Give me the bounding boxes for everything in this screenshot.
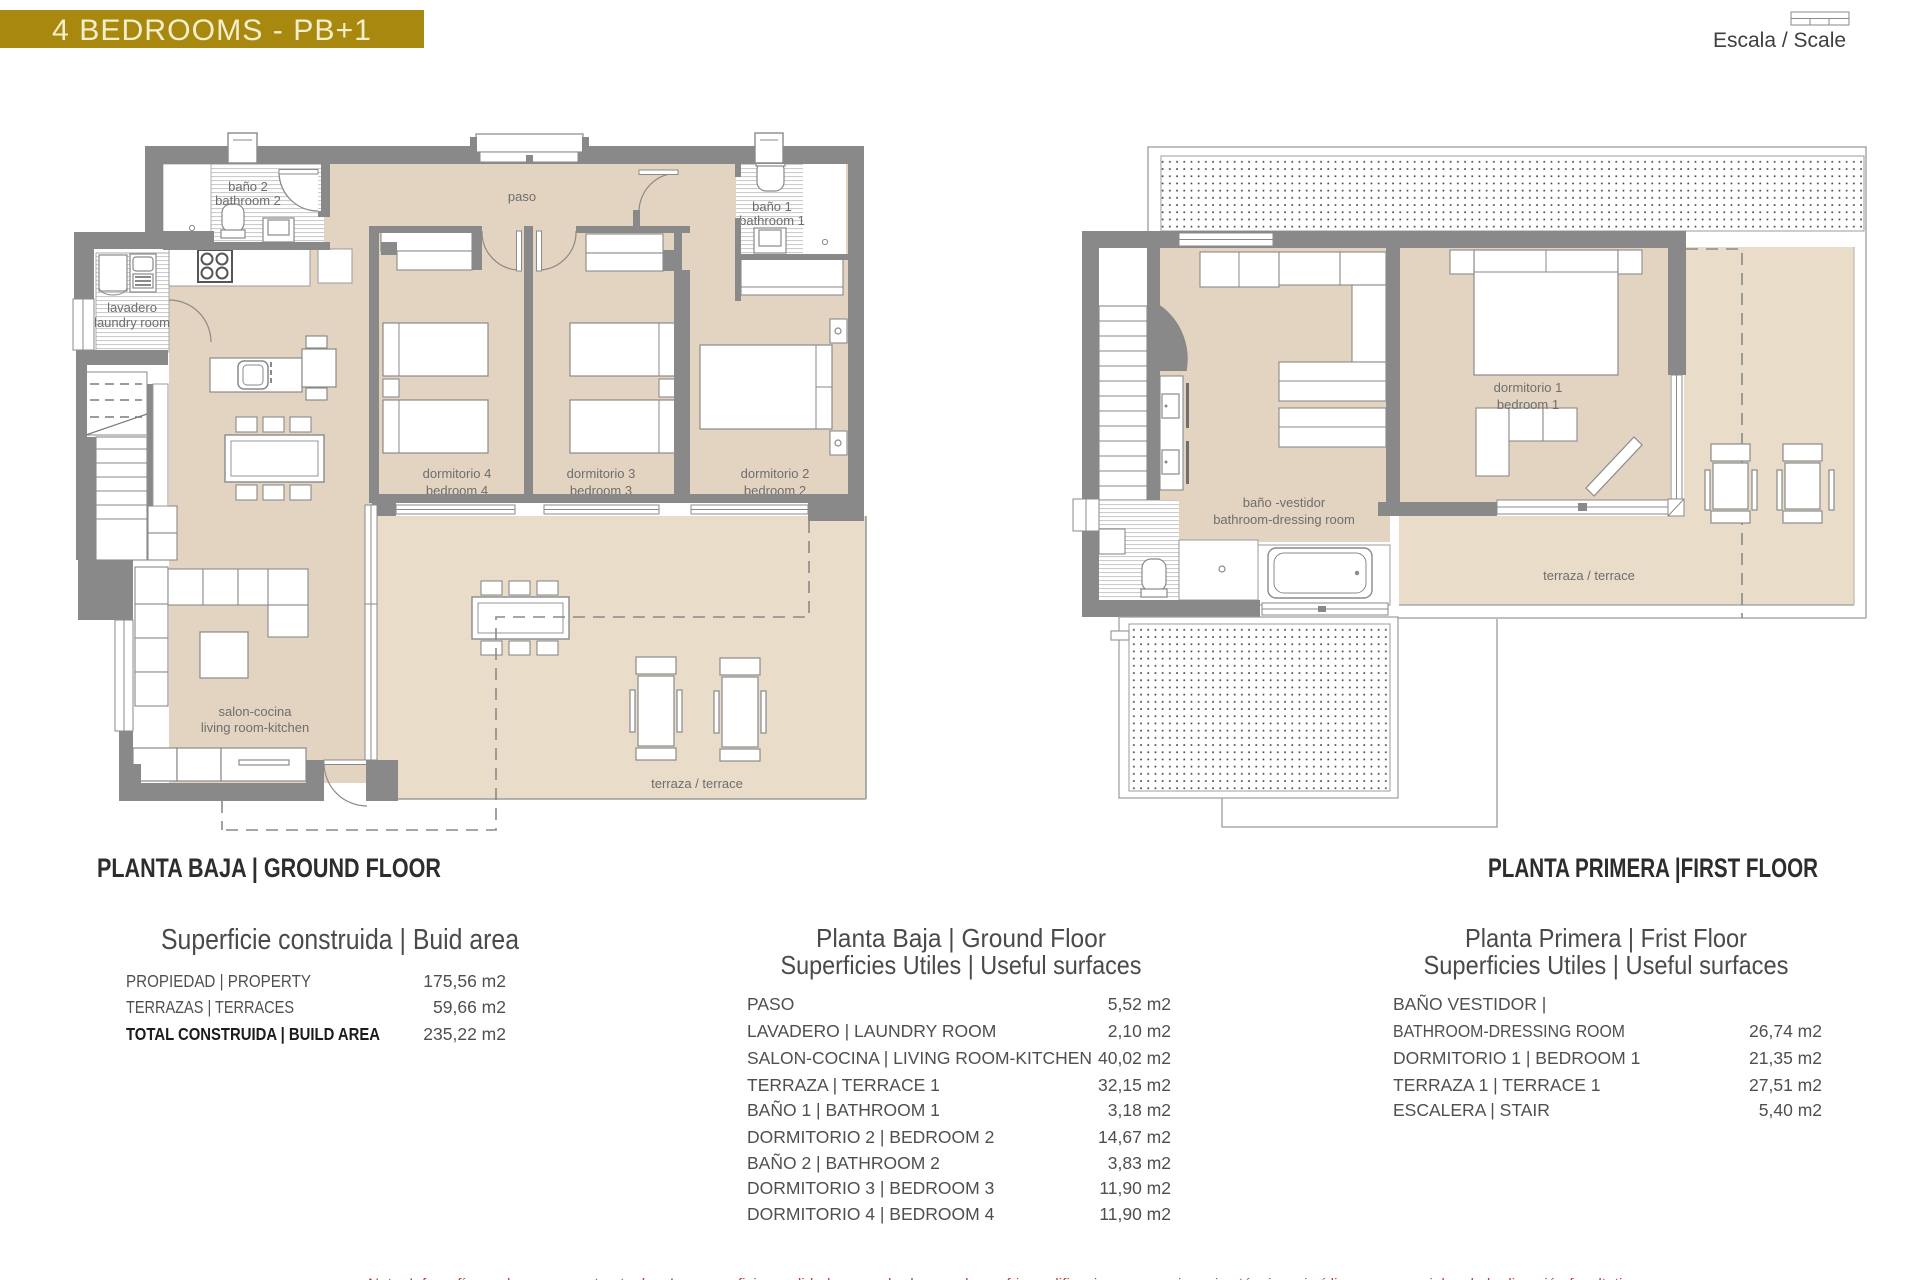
svg-text:Escala / Scale: Escala / Scale	[1713, 29, 1846, 52]
svg-text:bathroom-dressing room: bathroom-dressing room	[1213, 512, 1355, 527]
svg-text:baño 2: baño 2	[228, 179, 268, 194]
svg-text:dormitorio 1: dormitorio 1	[1494, 380, 1563, 395]
svg-text:4 BEDROOMS - PB+1: 4 BEDROOMS - PB+1	[52, 14, 372, 47]
svg-text:11,90 m2: 11,90 m2	[1099, 1204, 1171, 1224]
svg-text:TOTAL CONSTRUIDA | BUILD AREA: TOTAL CONSTRUIDA | BUILD AREA	[126, 1024, 380, 1044]
svg-text:salon-cocina: salon-cocina	[219, 704, 293, 719]
svg-text:living room-kitchen: living room-kitchen	[201, 720, 309, 735]
svg-text:TERRAZA | TERRACE 1: TERRAZA | TERRACE 1	[747, 1075, 940, 1095]
svg-text:TERRAZA 1 | TERRACE 1: TERRAZA 1 | TERRACE 1	[1393, 1075, 1600, 1095]
svg-text:26,74 m2: 26,74 m2	[1749, 1021, 1822, 1041]
svg-text:DORMITORIO 2 | BEDROOM 2: DORMITORIO 2 | BEDROOM 2	[747, 1127, 994, 1147]
svg-text:dormitorio 4: dormitorio 4	[423, 466, 492, 481]
svg-text:TERRAZAS | TERRACES: TERRAZAS | TERRACES	[126, 997, 294, 1017]
svg-text:SALON-COCINA | LIVING ROOM-KIT: SALON-COCINA | LIVING ROOM-KITCHEN	[747, 1048, 1092, 1068]
svg-text:DORMITORIO 3 | BEDROOM 3: DORMITORIO 3 | BEDROOM 3	[747, 1178, 994, 1198]
svg-text:21,35 m2: 21,35 m2	[1749, 1048, 1822, 1068]
svg-text:Nota: Infografías y planos no: Nota: Infografías y planos no contractua…	[368, 1275, 1643, 1280]
svg-text:PLANTA BAJA | GROUND FLOOR: PLANTA BAJA | GROUND FLOOR	[97, 853, 441, 883]
svg-text:terraza / terrace: terraza / terrace	[651, 776, 743, 791]
svg-text:40,02 m2: 40,02 m2	[1098, 1048, 1171, 1068]
svg-text:Superficies Utiles | Useful su: Superficies Utiles | Useful surfaces	[781, 950, 1142, 980]
svg-text:DORMITORIO 4 | BEDROOM 4: DORMITORIO 4 | BEDROOM 4	[747, 1204, 995, 1224]
svg-text:59,66 m2: 59,66 m2	[433, 997, 506, 1017]
svg-text:terraza / terrace: terraza / terrace	[1543, 568, 1635, 583]
svg-text:32,15 m2: 32,15 m2	[1098, 1075, 1171, 1095]
svg-text:LAVADERO | LAUNDRY ROOM: LAVADERO | LAUNDRY ROOM	[747, 1021, 996, 1041]
svg-text:235,22 m2: 235,22 m2	[423, 1024, 506, 1044]
svg-text:dormitorio 2: dormitorio 2	[741, 466, 810, 481]
svg-text:BAÑO VESTIDOR |: BAÑO VESTIDOR |	[1393, 993, 1546, 1014]
svg-text:BAÑO 2 | BATHROOM 2: BAÑO 2 | BATHROOM 2	[747, 1152, 940, 1173]
svg-text:bathroom 2: bathroom 2	[215, 193, 281, 208]
svg-text:laundry room: laundry room	[94, 315, 170, 330]
svg-text:11,90 m2: 11,90 m2	[1099, 1178, 1171, 1198]
svg-text:DORMITORIO 1 | BEDROOM 1: DORMITORIO 1 | BEDROOM 1	[1393, 1048, 1640, 1068]
svg-text:baño 1: baño 1	[752, 199, 792, 214]
svg-text:baño -vestidor: baño -vestidor	[1243, 495, 1326, 510]
svg-text:3,18 m2: 3,18 m2	[1108, 1100, 1171, 1120]
svg-text:Superficies Utiles | Useful su: Superficies Utiles | Useful surfaces	[1424, 950, 1789, 980]
svg-text:3,83 m2: 3,83 m2	[1108, 1153, 1171, 1173]
svg-text:lavadero: lavadero	[107, 300, 157, 315]
svg-text:5,40 m2: 5,40 m2	[1759, 1100, 1822, 1120]
svg-text:BAÑO 1 | BATHROOM 1: BAÑO 1 | BATHROOM 1	[747, 1099, 940, 1120]
svg-text:2,10 m2: 2,10 m2	[1108, 1021, 1171, 1041]
svg-text:BATHROOM-DRESSING ROOM: BATHROOM-DRESSING ROOM	[1393, 1021, 1625, 1041]
svg-text:bathroom 1: bathroom 1	[739, 213, 805, 228]
svg-text:5,52 m2: 5,52 m2	[1108, 994, 1171, 1014]
svg-text:175,56 m2: 175,56 m2	[423, 971, 506, 991]
svg-text:paso: paso	[508, 189, 536, 204]
svg-text:27,51 m2: 27,51 m2	[1749, 1075, 1822, 1095]
svg-text:PLANTA PRIMERA |FIRST FLOOR: PLANTA PRIMERA |FIRST FLOOR	[1488, 853, 1818, 883]
svg-text:PROPIEDAD | PROPERTY: PROPIEDAD | PROPERTY	[126, 971, 311, 991]
svg-text:Superficie construida | Buid a: Superficie construida | Buid area	[161, 924, 520, 956]
svg-text:bedroom 1: bedroom 1	[1497, 397, 1559, 412]
svg-text:PASO: PASO	[747, 994, 794, 1014]
svg-text:14,67 m2: 14,67 m2	[1098, 1127, 1171, 1147]
svg-text:Planta Primera | Frist Floor: Planta Primera | Frist Floor	[1465, 923, 1747, 953]
svg-text:Planta Baja | Ground Floor: Planta Baja | Ground Floor	[816, 923, 1106, 953]
svg-text:ESCALERA | STAIR: ESCALERA | STAIR	[1393, 1100, 1550, 1120]
svg-text:dormitorio 3: dormitorio 3	[567, 466, 636, 481]
